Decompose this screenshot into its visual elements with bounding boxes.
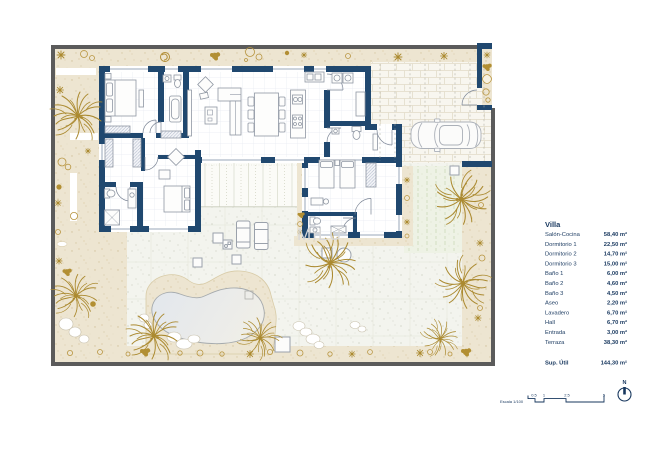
svg-text:Baño 3: Baño 3: [545, 291, 563, 297]
svg-text:14,70 m²: 14,70 m²: [604, 251, 627, 258]
svg-text:Dormitorio 1: Dormitorio 1: [545, 242, 577, 248]
svg-text:2.5: 2.5: [564, 393, 570, 398]
svg-text:Aseo: Aseo: [545, 301, 558, 307]
svg-text:Dormitorio 3: Dormitorio 3: [545, 261, 577, 267]
svg-text:Baño 1: Baño 1: [545, 271, 563, 277]
svg-text:22,50 m²: 22,50 m²: [604, 241, 627, 248]
svg-text:Villa: Villa: [545, 220, 561, 229]
svg-text:0.5: 0.5: [531, 393, 537, 398]
svg-text:144,30 m²: 144,30 m²: [601, 360, 627, 367]
svg-text:6,00 m²: 6,00 m²: [607, 270, 627, 277]
svg-text:Hall: Hall: [545, 320, 555, 326]
svg-text:Entrada: Entrada: [545, 330, 566, 336]
svg-text:38,30 m²: 38,30 m²: [604, 339, 627, 346]
svg-text:Sup. Útil: Sup. Útil: [545, 360, 569, 367]
svg-text:4,60 m²: 4,60 m²: [607, 280, 627, 287]
svg-text:3,00 m²: 3,00 m²: [607, 329, 627, 336]
svg-text:Baño 2: Baño 2: [545, 281, 563, 287]
svg-text:Dormitorio 2: Dormitorio 2: [545, 252, 577, 258]
svg-text:Salón-Cocina: Salón-Cocina: [545, 232, 581, 238]
svg-text:Escala 1/100: Escala 1/100: [500, 399, 524, 404]
svg-text:2,20 m²: 2,20 m²: [607, 300, 627, 307]
svg-text:N: N: [623, 380, 627, 386]
svg-text:Terraza: Terraza: [545, 340, 565, 346]
svg-text:MiLU: MiLU: [297, 225, 343, 244]
svg-text:6,70 m²: 6,70 m²: [607, 309, 627, 316]
svg-text:Lavadero: Lavadero: [545, 310, 569, 316]
svg-text:4,50 m²: 4,50 m²: [607, 290, 627, 297]
svg-text:58,40 m²: 58,40 m²: [604, 231, 627, 238]
svg-text:6,70 m²: 6,70 m²: [607, 319, 627, 326]
svg-text:15,00 m²: 15,00 m²: [604, 260, 627, 267]
